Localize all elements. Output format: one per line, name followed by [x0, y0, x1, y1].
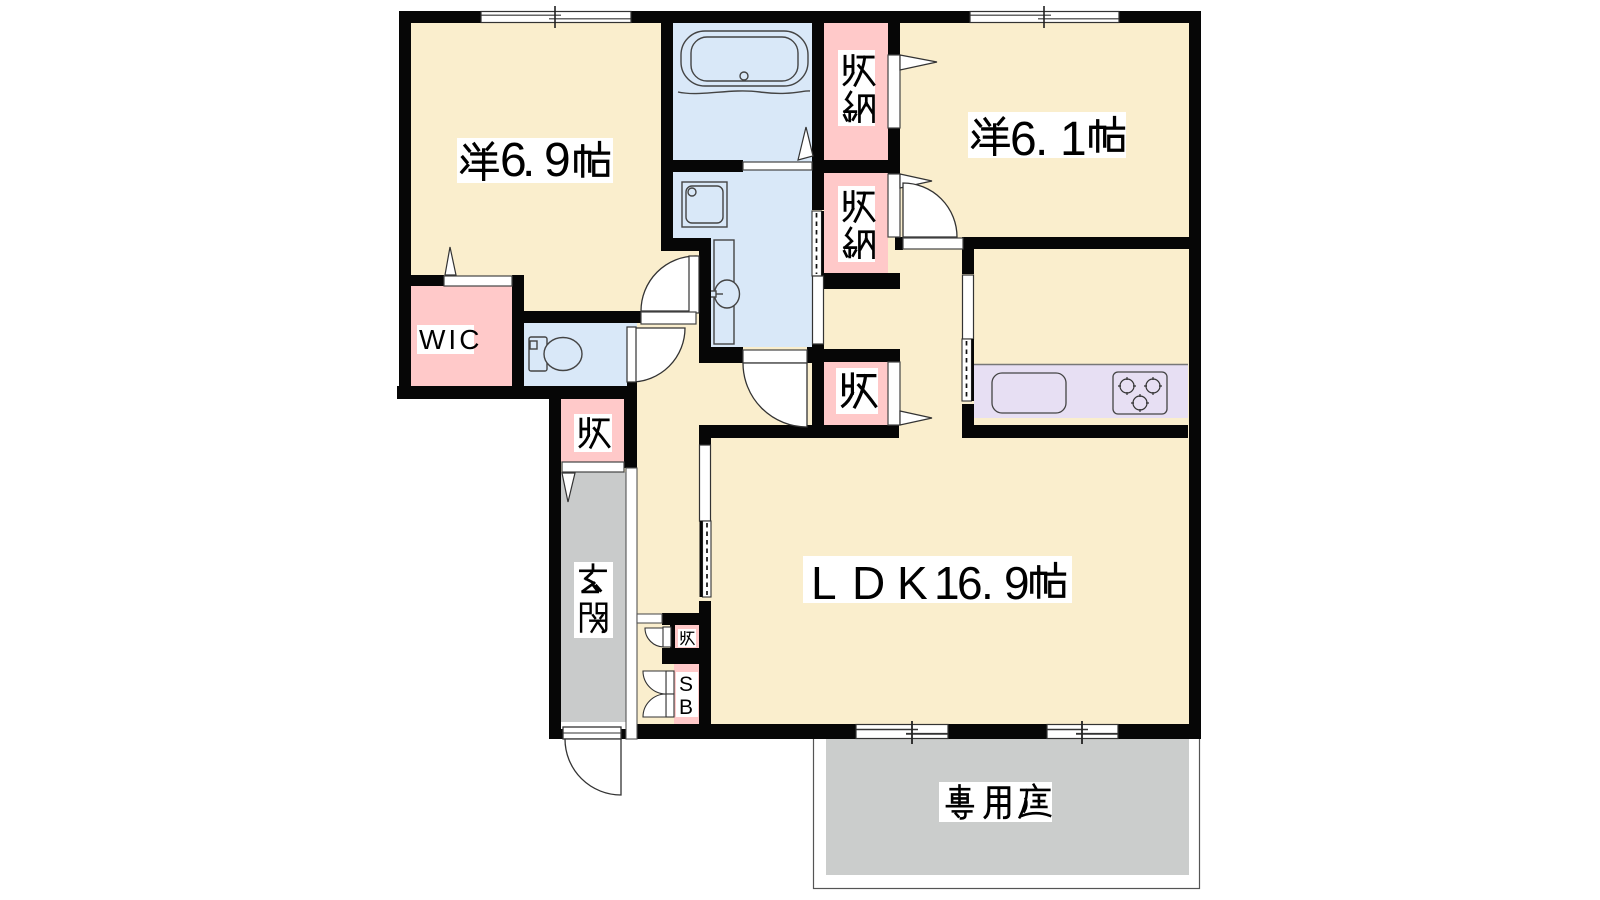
svg-text:B: B	[679, 696, 693, 719]
svg-text:S: S	[679, 673, 693, 696]
svg-text:16.9: 16.9	[934, 557, 1030, 609]
svg-text:LDK: LDK	[811, 557, 928, 609]
svg-text:WIC: WIC	[419, 324, 482, 355]
